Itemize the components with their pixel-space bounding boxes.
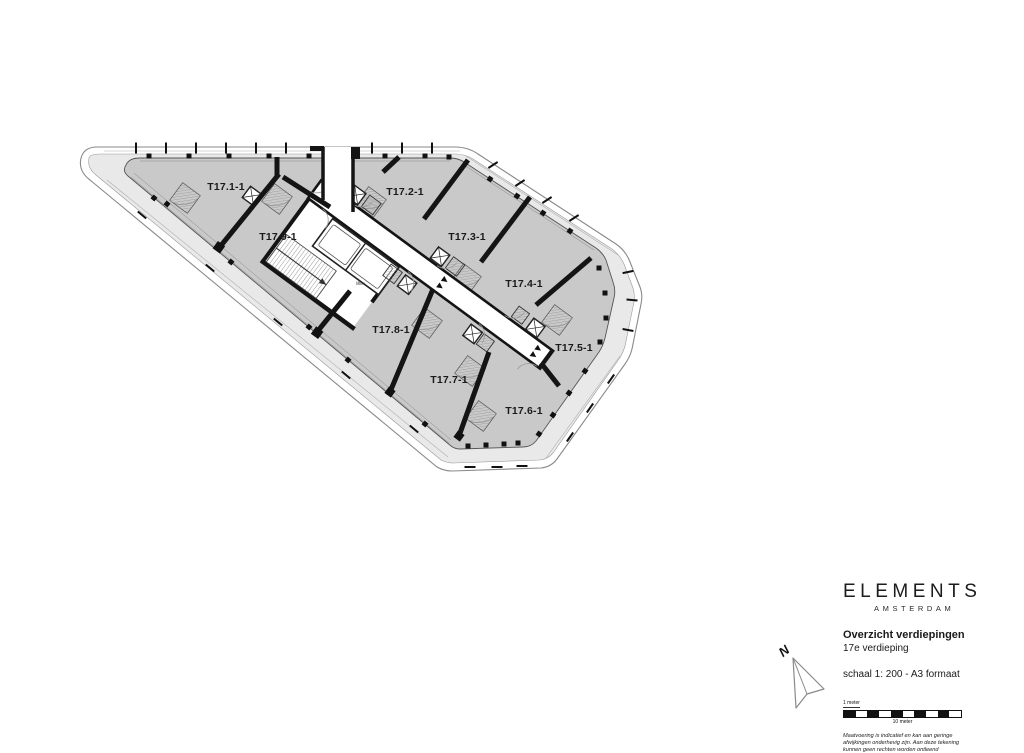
scalebar-end-label: 10 meter [843, 719, 962, 725]
unit-label: T17.8-1 [372, 324, 410, 336]
floor-label: 17e verdieping [843, 643, 993, 654]
unit-label: T17.5-1 [555, 342, 593, 354]
unit-label: T17.6-1 [505, 405, 543, 417]
scalebar-graphic [843, 710, 962, 718]
disclaimer-line: Maatvoering is indicatief en kan aan ger… [843, 733, 993, 740]
unit-label: T17.4-1 [505, 278, 543, 290]
unit-label: T17.9-1 [259, 231, 297, 243]
disclaimer-line: kunnen geen rechten worden ontleend [843, 747, 993, 753]
brand-subtitle: AMSTERDAM [874, 604, 993, 613]
unit-label: T17.3-1 [448, 231, 486, 243]
unit-label: T17.7-1 [430, 374, 468, 386]
unit-label: T17.1-1 [207, 181, 245, 193]
scalebar-start-label: 1 meter [843, 700, 860, 708]
north-arrow-icon [793, 658, 824, 708]
north-arrow: N [776, 642, 824, 708]
brand-logo: ELEMENTS [843, 581, 993, 603]
disclaimer-text: Maatvoering is indicatief en kan aan ger… [843, 733, 993, 753]
scale-bar: 1 meter 10 meter [843, 691, 962, 725]
drawing-page: { "plan": { "units": [ {"label": "T17.1-… [0, 0, 1024, 737]
core-label: liften [356, 281, 366, 286]
disclaimer-line: afwijkingen onderhevig zijn. Aan deze te… [843, 740, 993, 747]
scale-label: schaal 1: 200 - A3 formaat [843, 669, 993, 680]
drawing-title: Overzicht verdiepingen [843, 629, 993, 641]
title-block: ELEMENTS AMSTERDAM Overzicht verdiepinge… [843, 581, 993, 753]
north-label: N [776, 642, 793, 660]
unit-label: T17.2-1 [386, 186, 424, 198]
